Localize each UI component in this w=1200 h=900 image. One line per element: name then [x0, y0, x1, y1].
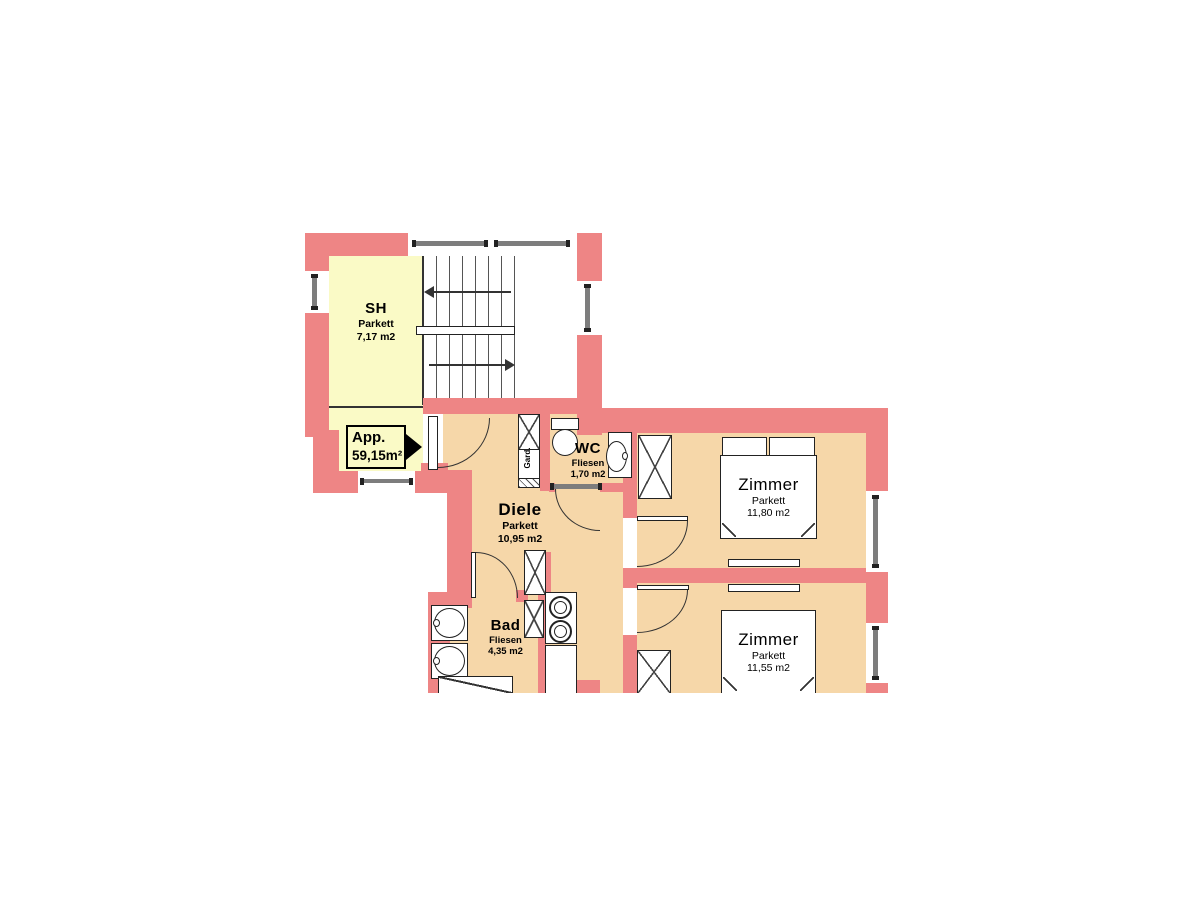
diele-area: 10,95 m2 — [470, 533, 570, 546]
shower-icon — [438, 676, 513, 693]
bad-name: Bad — [468, 617, 543, 635]
stair-handrail — [416, 326, 515, 335]
bad-faucet-2-icon — [433, 657, 440, 665]
wc-area: 1,70 m2 — [556, 469, 620, 480]
entry-door-leaf — [428, 416, 438, 470]
wall-between-zimmer — [637, 568, 866, 583]
bed2-fold-right — [800, 677, 814, 691]
washer-drum-2-inner — [554, 625, 567, 638]
bad-floor: Fliesen — [468, 635, 543, 646]
stair-arrow-up-icon — [424, 286, 434, 298]
diele-floor: Parkett — [470, 520, 570, 533]
zimmer2-name: Zimmer — [738, 630, 799, 650]
wall-left-lower — [313, 430, 339, 475]
zimmer2-floor: Parkett — [752, 650, 785, 662]
diele-name: Diele — [470, 500, 570, 520]
zimmer1-floor: Parkett — [752, 495, 785, 507]
wardrobe-zimmer1 — [638, 435, 672, 499]
radiator-icon-2 — [728, 584, 800, 592]
window-zimmer2-glass — [873, 628, 878, 678]
label-wc: WC Fliesen 1,70 m2 — [556, 440, 620, 481]
bed2-fold-left — [723, 677, 737, 691]
wall-corridor-stub — [577, 680, 600, 693]
shaft-upper — [524, 550, 546, 595]
zimmer1-area: 11,80 m2 — [747, 507, 790, 519]
zimmer2-area: 11,55 m2 — [747, 662, 790, 674]
garderobe-hatch — [518, 478, 540, 488]
sh-area: 7,17 m2 — [329, 331, 423, 344]
window-stairwell-glass — [585, 286, 590, 330]
wall-exterior-vertical — [447, 470, 472, 602]
apartment-label-box: App. 59,15m² — [346, 425, 406, 469]
wall-wing-top — [577, 408, 888, 433]
entrance-arrow-icon — [406, 434, 422, 460]
garderobe-label: Gard. — [523, 438, 535, 478]
wc-name: WC — [556, 440, 620, 458]
bad-faucet-1-icon — [433, 619, 440, 627]
wall-stair-bottom — [423, 398, 585, 414]
bath-cabinet — [545, 645, 577, 693]
doorway-zimmer1 — [623, 518, 637, 568]
wall-wc-left — [540, 414, 550, 491]
window-zimmer1-glass — [873, 497, 878, 566]
label-bad: Bad Fliesen 4,35 m2 — [468, 617, 543, 658]
bed1-fold-left — [722, 523, 736, 537]
label-sh: SH Parkett 7,17 m2 — [329, 300, 423, 343]
wc-faucet-icon — [622, 452, 628, 460]
apartment-name: App. — [352, 429, 404, 448]
bad-area: 4,35 m2 — [468, 646, 543, 657]
window-top-glass2 — [496, 241, 568, 246]
wall-left — [305, 233, 329, 437]
apartment-area: 59,15m² — [352, 448, 404, 465]
window-left-glass — [312, 276, 317, 308]
window-sh-bottom-glass — [362, 479, 411, 483]
wc-floor: Fliesen — [556, 458, 620, 469]
room-divider-line — [329, 406, 423, 408]
stair-arrow-down-icon — [505, 359, 515, 371]
wardrobe-zimmer2 — [637, 650, 671, 693]
window-top-glass — [414, 241, 486, 246]
doorway-zimmer2 — [623, 588, 637, 635]
wall-wc-bottom-b — [600, 483, 623, 492]
stair-walkline-up — [433, 291, 511, 293]
zimmer1-name: Zimmer — [738, 475, 799, 495]
label-diele: Diele Parkett 10,95 m2 — [470, 500, 570, 546]
bed1-fold-right — [801, 523, 815, 537]
sh-name: SH — [329, 300, 423, 318]
floor-plan: Gard. Zimmer Parkett 11,80 m2 Zimmer Par… — [0, 0, 1200, 900]
washer-drum-1-inner — [554, 601, 567, 614]
stair-walkline-down — [429, 364, 507, 366]
radiator-icon — [728, 559, 800, 567]
sh-floor: Parkett — [329, 318, 423, 331]
